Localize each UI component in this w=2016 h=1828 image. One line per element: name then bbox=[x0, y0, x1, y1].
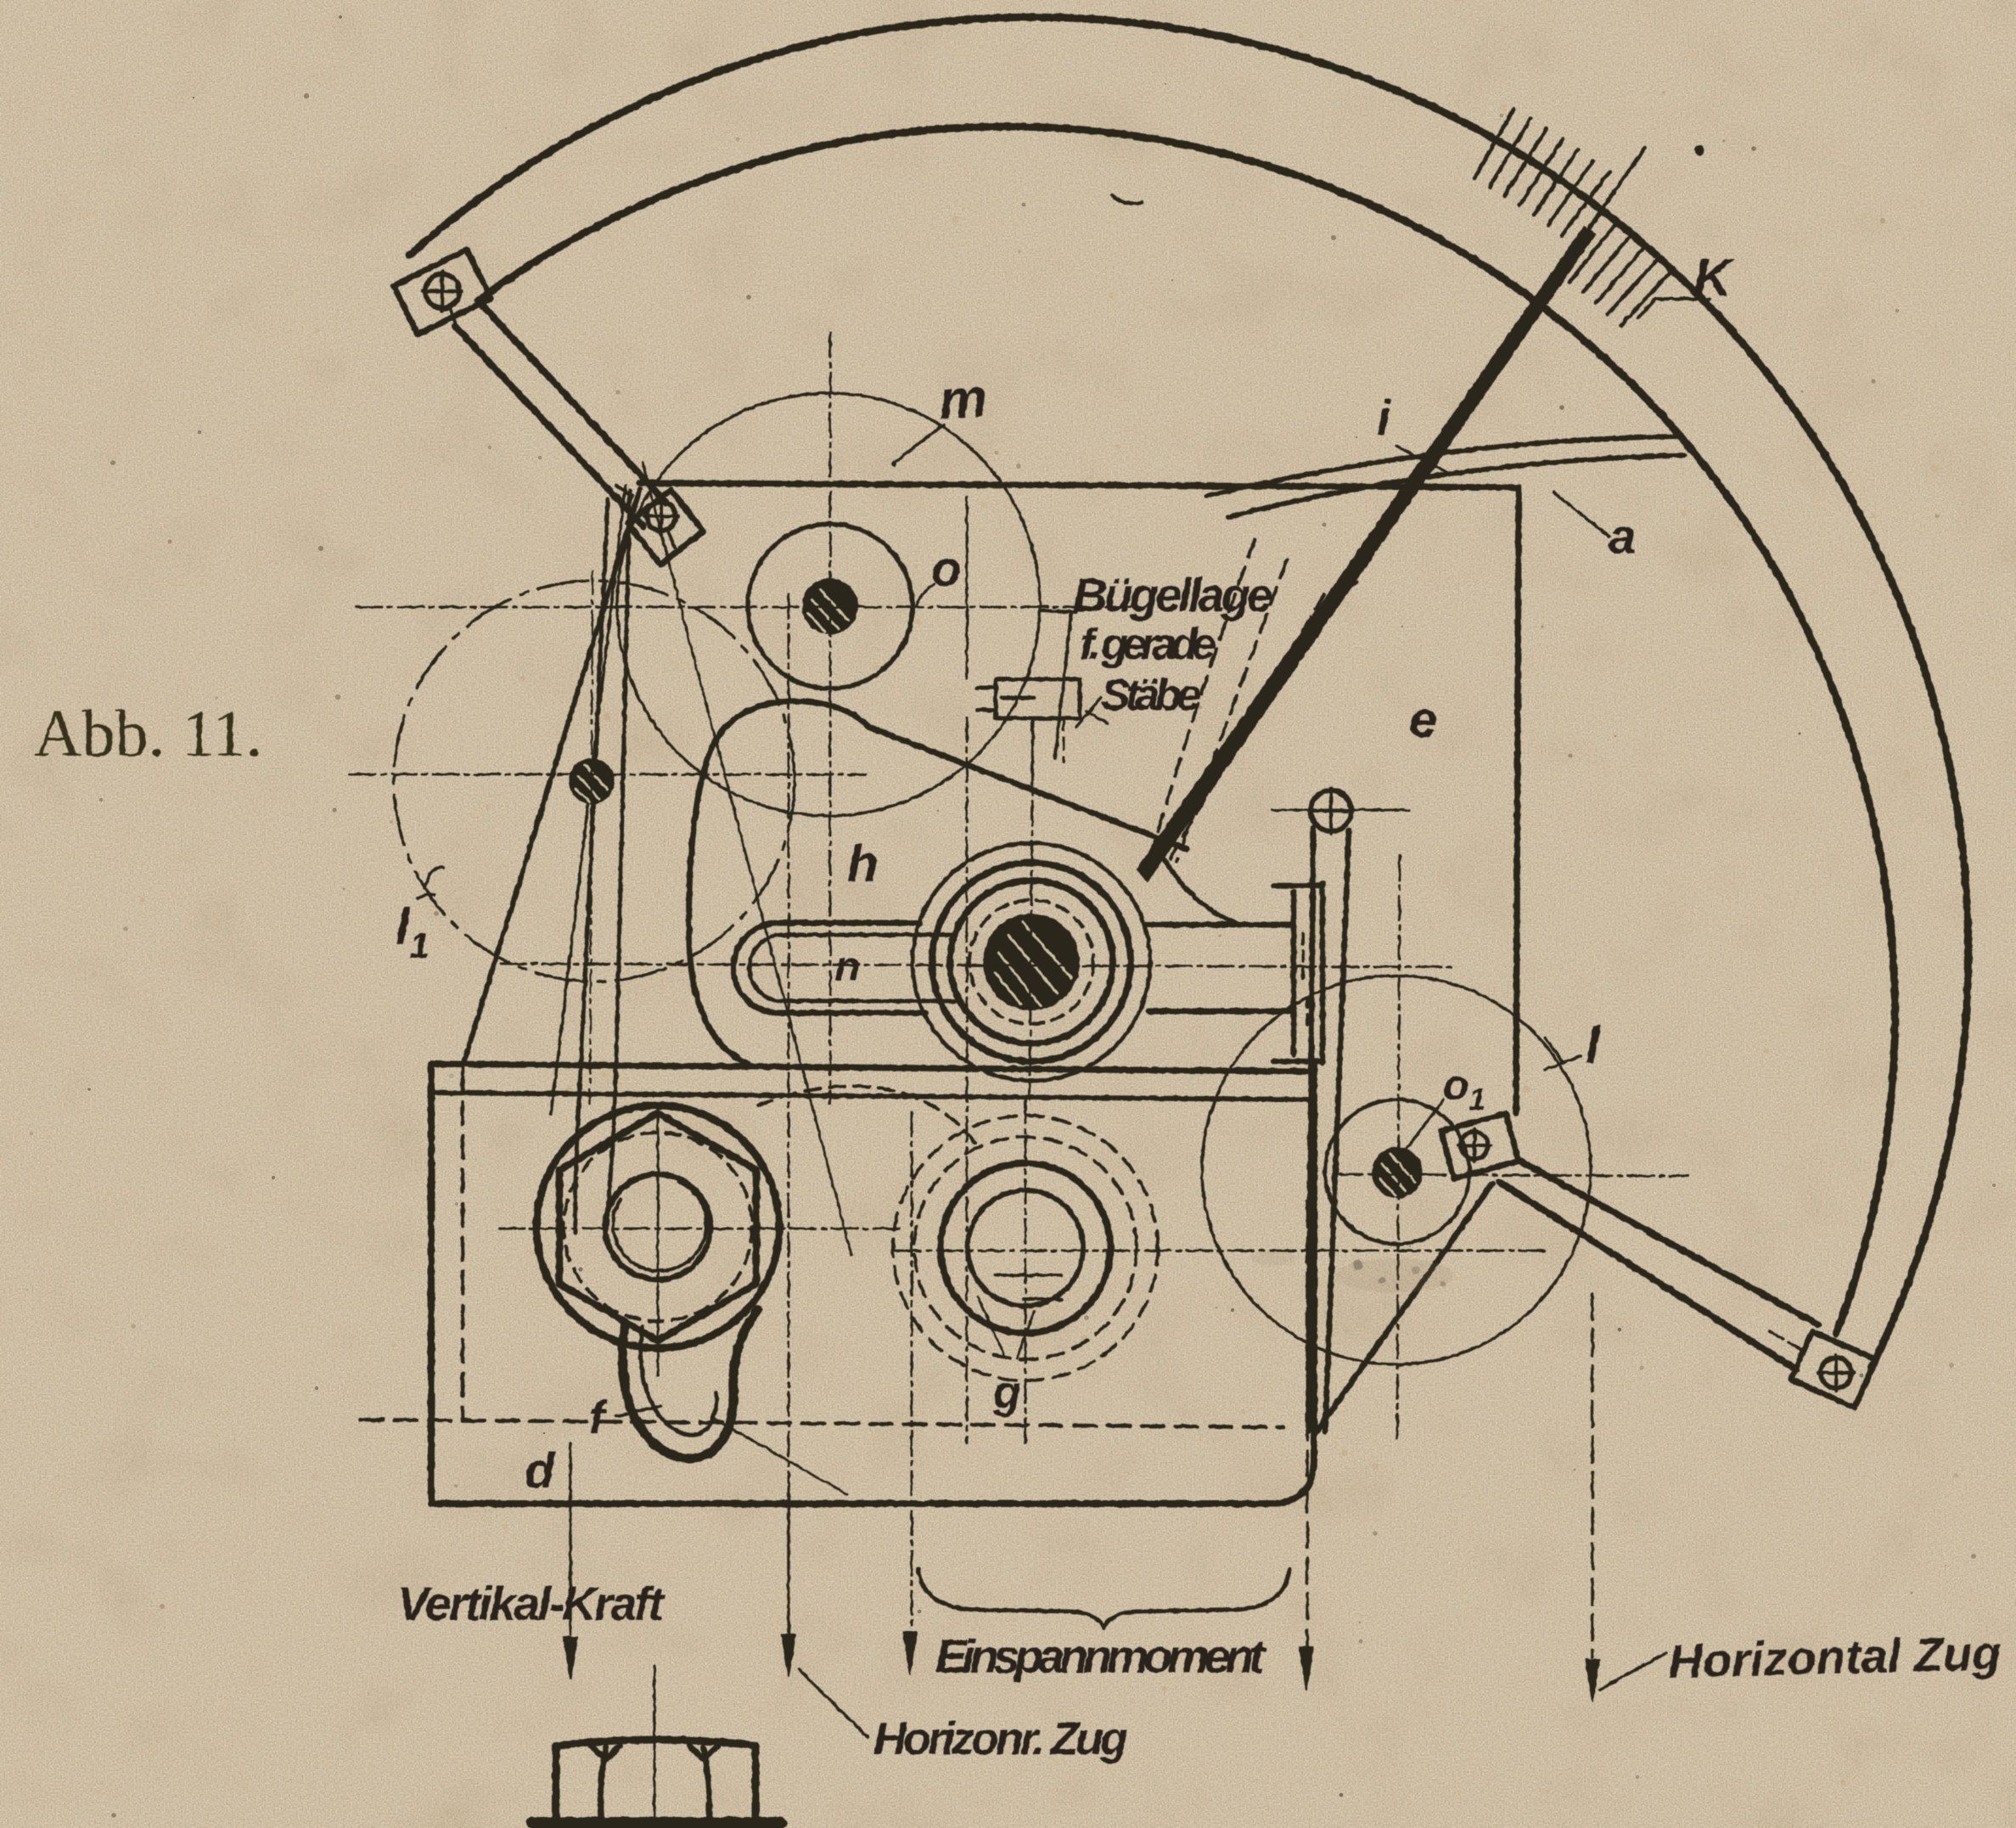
svg-text:Stäbe: Stäbe bbox=[1101, 671, 1201, 720]
svg-text:m: m bbox=[937, 367, 990, 431]
svg-text:g: g bbox=[992, 1367, 1021, 1418]
svg-text:Vertikal-Kraft: Vertikal-Kraft bbox=[397, 1577, 665, 1630]
svg-text:h: h bbox=[847, 835, 879, 892]
svg-text:e: e bbox=[1409, 691, 1437, 748]
svg-text:a: a bbox=[1609, 509, 1636, 565]
svg-text:Einspannmoment: Einspannmoment bbox=[935, 1629, 1266, 1683]
svg-text:Bügellage: Bügellage bbox=[1073, 568, 1273, 622]
svg-text:Horizontal Zug: Horizontal Zug bbox=[1668, 1626, 2002, 1688]
svg-text:Abb. 11.: Abb. 11. bbox=[34, 696, 264, 770]
svg-text:i: i bbox=[1377, 391, 1392, 446]
svg-text:l: l bbox=[1586, 1017, 1601, 1074]
svg-text:Horizonr. Zug: Horizonr. Zug bbox=[873, 1713, 1128, 1764]
svg-text:n: n bbox=[834, 942, 861, 990]
svg-text:f. gerade: f. gerade bbox=[1080, 620, 1216, 669]
svg-text:d: d bbox=[525, 1443, 556, 1499]
svg-text:o: o bbox=[931, 542, 961, 597]
